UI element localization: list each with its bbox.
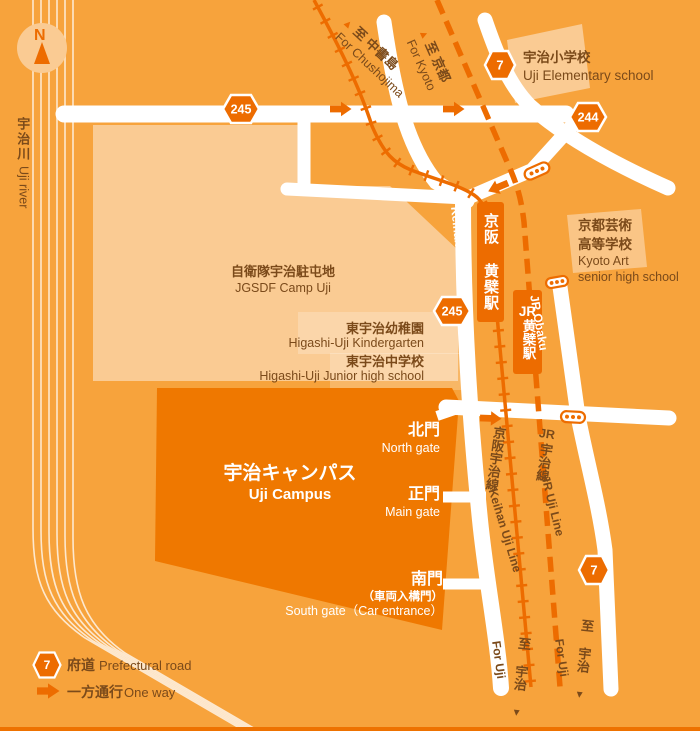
gate-en: South gate（Car entrance） bbox=[237, 604, 443, 619]
down-triangle-icon: ▼ bbox=[510, 707, 522, 719]
rail-tick bbox=[506, 473, 517, 474]
place-kanji: 東宇治中学校 bbox=[208, 354, 424, 369]
rail-tick bbox=[497, 378, 508, 379]
badge-number: 7 bbox=[44, 658, 51, 672]
place-en: Higashi-Uji Junior high school bbox=[208, 369, 424, 384]
route-245-badge-west: 245 bbox=[223, 95, 259, 123]
road-mid-horizontal bbox=[446, 407, 669, 418]
route-244-badge: 244 bbox=[570, 103, 606, 131]
station-marker-icon bbox=[523, 161, 551, 182]
place-kanji: 自衛隊宇治駐屯地 bbox=[193, 264, 373, 280]
kyoto-art-school-label: 京都芸術 高等学校 Kyoto Art senior high school bbox=[578, 216, 679, 285]
rail-tick bbox=[508, 489, 519, 490]
gate-kanji: 正門 bbox=[330, 485, 440, 505]
place-en: Higashi-Uji Kindergarten bbox=[224, 336, 424, 351]
legend-oneway-en: One way bbox=[124, 685, 175, 701]
river-label-kanji: 宇治川 bbox=[14, 117, 30, 162]
gate-kanji: 南門 bbox=[237, 570, 443, 590]
gate-en: North gate bbox=[340, 441, 440, 456]
rail-tick bbox=[510, 521, 521, 522]
place-en: senior high school bbox=[578, 270, 679, 286]
place-kanji: 高等学校 bbox=[578, 235, 679, 254]
campus-kanji: 宇治キャンパス bbox=[210, 462, 370, 486]
rail-tick bbox=[518, 601, 529, 602]
legend-oneway-kanji: 一方通行 bbox=[67, 684, 123, 702]
rail-tick bbox=[500, 410, 511, 411]
gate-en: Main gate bbox=[330, 505, 440, 520]
rail-tick bbox=[493, 330, 504, 331]
badge-number: 7 bbox=[496, 58, 503, 73]
prefectural-road-badge-icon: 7 bbox=[34, 653, 61, 678]
legend-prefectural-kanji: 府道 bbox=[67, 657, 95, 675]
rail-tick bbox=[516, 585, 527, 586]
badge-number: 245 bbox=[231, 103, 252, 117]
route-245-badge-mid: 245 bbox=[434, 297, 470, 325]
jgsdf-camp-label: 自衛隊宇治駐屯地 JGSDF Camp Uji bbox=[193, 264, 373, 296]
elementary-school-label: 宇治小学校 Uji Elementary school bbox=[523, 49, 654, 84]
badge-number: 7 bbox=[590, 563, 597, 578]
road-camp-east-west bbox=[287, 189, 465, 198]
down-triangle-icon: ▼ bbox=[573, 689, 585, 701]
rail-tick bbox=[521, 633, 532, 634]
river-label-en: Uji river bbox=[15, 166, 31, 208]
direction-kanji: 至 宇治 bbox=[574, 618, 595, 673]
bottom-edge-strip bbox=[0, 727, 700, 731]
rail-tick bbox=[499, 394, 510, 395]
legend-prefectural-en: Prefectural road bbox=[99, 658, 192, 674]
place-kanji: 宇治小学校 bbox=[523, 49, 654, 67]
direction-kanji: 至 宇治 bbox=[511, 636, 532, 691]
gate-note: （車両入構門） bbox=[237, 590, 443, 604]
compass-n-label: N bbox=[34, 26, 46, 46]
gate-kanji: 北門 bbox=[340, 421, 440, 441]
rail-tick bbox=[519, 617, 530, 618]
place-kanji: 東宇治幼稚園 bbox=[224, 321, 424, 336]
place-en: JGSDF Camp Uji bbox=[193, 280, 373, 296]
road-station-diagonal bbox=[465, 117, 580, 199]
uji-campus-map: 245 245 244 7 7 7 N 宇治川 Uji river ▲ 至 中書… bbox=[0, 0, 700, 731]
north-gate-label: 北門 North gate bbox=[340, 421, 440, 456]
one-way-arrow-icon bbox=[37, 683, 60, 698]
badge-number: 244 bbox=[578, 111, 599, 125]
keihan-obaku-station-label: 京阪 黄檗駅 bbox=[477, 202, 504, 322]
route-7-badge-south: 7 bbox=[579, 556, 609, 584]
main-gate-label: 正門 Main gate bbox=[330, 485, 440, 520]
station-marker-icon bbox=[561, 411, 586, 423]
place-en: Kyoto Art bbox=[578, 254, 679, 270]
rail-tick bbox=[509, 505, 520, 506]
kindergarten-label: 東宇治幼稚園 Higashi-Uji Kindergarten bbox=[224, 321, 424, 351]
route-7-badge-north: 7 bbox=[485, 51, 515, 79]
junior-high-label: 東宇治中学校 Higashi-Uji Junior high school bbox=[208, 354, 424, 384]
place-kanji: 京都芸術 bbox=[578, 216, 679, 235]
place-en: Uji Elementary school bbox=[523, 67, 654, 85]
south-gate-label: 南門 （車両入構門） South gate（Car entrance） bbox=[237, 570, 443, 619]
badge-number: 245 bbox=[442, 305, 463, 319]
rail-tick bbox=[505, 458, 516, 459]
line-prefix: JR bbox=[538, 426, 556, 444]
rail-tick bbox=[496, 362, 507, 363]
rail-tick bbox=[494, 346, 505, 347]
